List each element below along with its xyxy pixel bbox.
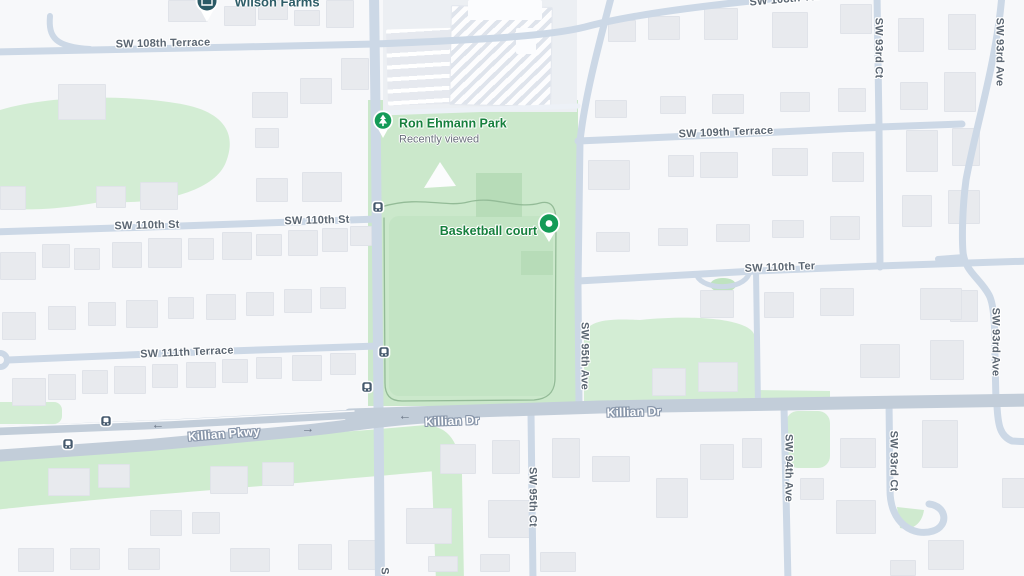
building	[742, 438, 762, 468]
building	[838, 88, 866, 112]
building	[302, 172, 342, 202]
building	[192, 512, 220, 534]
building	[648, 16, 680, 40]
building	[288, 230, 318, 256]
park-building	[424, 162, 456, 188]
poi-label-wilson-farms[interactable]: Wilson Farms	[234, 0, 319, 10]
wilson-farms-pin[interactable]	[194, 0, 220, 24]
pin-pointer	[201, 11, 213, 22]
building	[830, 216, 860, 240]
park-lawn	[389, 216, 553, 396]
building	[256, 178, 288, 202]
building	[98, 464, 130, 488]
building	[922, 420, 958, 468]
building	[256, 357, 282, 379]
building	[255, 128, 279, 148]
street-label-partial-s: S	[379, 567, 390, 575]
building	[948, 14, 976, 50]
building	[716, 224, 750, 242]
building	[832, 152, 864, 182]
arrow-right-icon: →	[302, 421, 315, 436]
building	[48, 306, 76, 330]
street-label-sw-93rd-ave-n: SW 93rd Ave	[994, 18, 1005, 87]
street-label-sw-108th-ter-partial: SW 108th Ter	[749, 0, 821, 9]
building	[840, 4, 872, 34]
building	[152, 364, 178, 388]
building	[902, 195, 932, 227]
building	[552, 438, 580, 478]
building	[840, 438, 876, 468]
building	[0, 186, 26, 210]
building	[595, 100, 627, 118]
building	[18, 548, 54, 572]
building	[42, 244, 70, 268]
arrow-left-icon: ←	[152, 417, 165, 432]
building	[428, 556, 458, 572]
building	[660, 96, 686, 114]
building	[860, 344, 900, 378]
building	[96, 186, 126, 208]
ron-ehmann-park-pin[interactable]	[371, 110, 395, 140]
building	[58, 84, 106, 120]
building	[440, 444, 476, 474]
basketball-court-pin[interactable]	[536, 212, 562, 244]
building	[292, 355, 322, 381]
building	[658, 228, 688, 246]
building	[12, 378, 46, 406]
building	[148, 238, 182, 268]
street-label-sw-93rd-ct-s: SW 93rd Ct	[888, 431, 899, 492]
building	[928, 540, 964, 570]
building	[836, 500, 876, 534]
building	[540, 552, 576, 572]
park-area	[368, 100, 578, 406]
building	[890, 560, 916, 576]
building	[88, 302, 116, 326]
street-label-sw-111th-terrace: SW 111th Terrace	[140, 345, 234, 360]
building	[48, 374, 76, 400]
grass-loop-triangle	[897, 507, 924, 529]
road-sw-93rd-ct-stub	[850, 128, 878, 129]
building	[1002, 478, 1024, 508]
building	[74, 248, 100, 270]
commercial-building-top	[468, 0, 542, 20]
bus-stop-icon[interactable]	[361, 381, 374, 394]
commercial-building-small	[516, 28, 536, 54]
bus-stop-icon[interactable]	[372, 201, 385, 214]
building	[284, 289, 312, 313]
building	[262, 462, 294, 486]
building	[186, 362, 216, 388]
building	[800, 478, 824, 500]
street-label-sw-93rd-ct-n: SW 93rd Ct	[873, 18, 884, 79]
building	[48, 468, 90, 496]
building	[222, 232, 252, 260]
building	[700, 444, 734, 480]
building	[222, 359, 248, 383]
building	[210, 466, 248, 494]
building	[298, 544, 332, 570]
bus-stop-icon[interactable]	[378, 346, 391, 359]
building	[246, 292, 274, 316]
road-sw-93rd-ave-branch	[938, 257, 964, 259]
building	[188, 238, 214, 260]
poi-label-basketball-court[interactable]: Basketball court	[440, 224, 537, 238]
building	[140, 182, 178, 210]
road-hook-top-left	[50, 16, 90, 49]
building	[70, 548, 100, 570]
building	[900, 82, 928, 110]
building	[698, 362, 738, 392]
building	[952, 128, 980, 166]
street-label-killian-dr-a: Killian Dr	[424, 414, 479, 428]
bus-stop-icon[interactable]	[100, 415, 113, 428]
building	[772, 220, 804, 238]
bus-stop-icon[interactable]	[62, 438, 75, 451]
poi-label-ron-ehmann-park[interactable]: Ron Ehmann Park Recently viewed	[399, 117, 507, 146]
cul-de-sac	[0, 350, 10, 370]
building	[82, 370, 108, 394]
building	[948, 190, 980, 224]
building	[230, 548, 270, 572]
street-label-sw-110th-st-a: SW 110th St	[114, 220, 179, 233]
building	[112, 242, 142, 268]
building	[588, 160, 630, 190]
building	[0, 252, 36, 280]
mall-building	[449, 5, 553, 107]
building	[252, 92, 288, 118]
road-main-ns	[374, 0, 380, 576]
street-label-sw-110th-ter: SW 110th Ter	[744, 261, 815, 275]
building	[906, 130, 938, 172]
road-pond-detour	[697, 274, 749, 287]
road-sw-94th-ave-n	[756, 271, 758, 405]
park-field-1	[476, 173, 522, 217]
building	[898, 18, 924, 52]
building	[256, 234, 282, 256]
building	[944, 72, 976, 112]
arrow-left-icon: ←	[399, 408, 412, 423]
building	[206, 294, 236, 320]
building	[492, 440, 520, 474]
building	[126, 300, 158, 328]
building	[150, 510, 182, 536]
building	[700, 290, 734, 318]
building	[294, 10, 320, 26]
building	[668, 155, 694, 177]
building	[480, 554, 510, 572]
building	[350, 226, 372, 246]
road-sw-93rd-ave-s	[997, 406, 1024, 442]
building	[656, 478, 688, 518]
building	[592, 456, 630, 482]
park-field-2	[521, 251, 553, 275]
building	[320, 287, 346, 309]
street-label-sw-110th-st-b: SW 110th St	[284, 215, 349, 228]
map-canvas[interactable]: SW 108th Terrace SW 108th Ter SW 109th T…	[0, 0, 1024, 576]
street-label-sw-95th-ave: SW 95th Ave	[579, 322, 590, 390]
building	[168, 297, 194, 319]
building	[704, 8, 738, 40]
building	[114, 366, 146, 394]
building	[700, 152, 738, 178]
building	[326, 0, 354, 28]
building	[608, 20, 636, 42]
building	[322, 228, 348, 252]
building	[712, 94, 744, 114]
building	[764, 292, 794, 318]
building	[341, 58, 369, 90]
building	[652, 368, 686, 396]
street-label-sw-93rd-ave-mid: SW 93rd Ave	[990, 308, 1001, 377]
building	[780, 92, 810, 112]
dot-pin-icon	[546, 220, 553, 227]
street-label-sw-109th-terrace: SW 109th Terrace	[678, 126, 773, 141]
building	[930, 340, 964, 380]
building	[772, 12, 808, 48]
street-label-killian-dr-b: Killian Dr	[607, 405, 662, 418]
street-label-sw-108th-terrace: SW 108th Terrace	[116, 38, 211, 51]
street-label-sw-94th-ave: SW 94th Ave	[783, 434, 794, 502]
building	[348, 540, 376, 570]
building	[2, 312, 36, 340]
street-label-killian-pkwy: Killian Pkwy	[187, 425, 260, 443]
poi-subtitle: Recently viewed	[399, 134, 507, 146]
poi-name[interactable]: Ron Ehmann Park	[399, 117, 507, 131]
road-killian-dr	[350, 400, 1024, 415]
building	[330, 353, 356, 375]
building	[128, 548, 160, 570]
building	[300, 78, 332, 104]
building	[596, 232, 630, 252]
building	[406, 508, 452, 544]
building	[772, 148, 808, 176]
building	[920, 288, 962, 320]
street-label-sw-95th-ct: SW 95th Ct	[527, 467, 538, 527]
building	[820, 288, 854, 316]
